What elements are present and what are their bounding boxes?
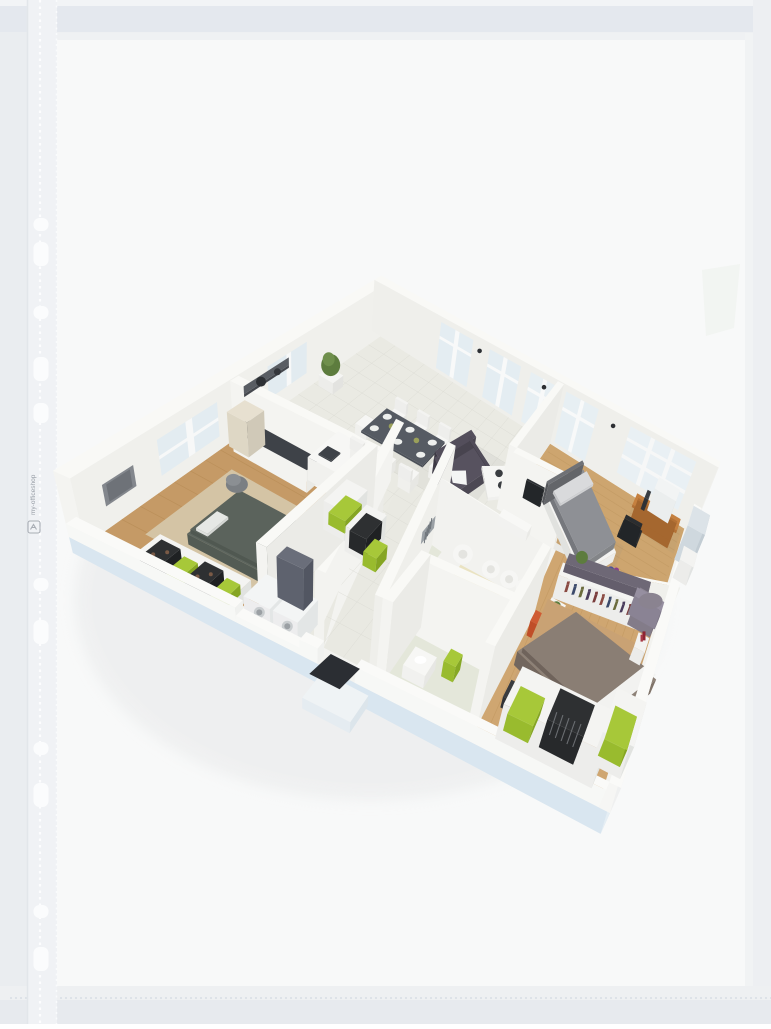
svg-text:my-officeshop: my-officeshop [30, 474, 37, 515]
